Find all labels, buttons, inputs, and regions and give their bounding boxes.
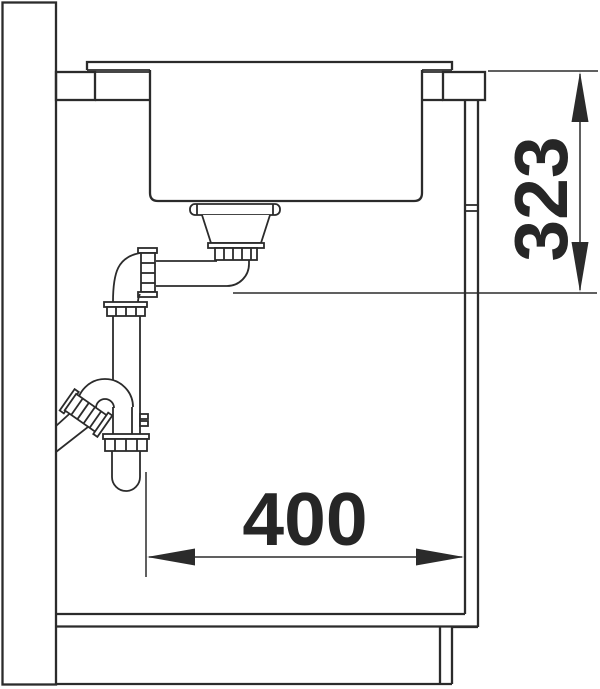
dimension-400: 400 <box>146 472 464 577</box>
countertop-left-cut <box>56 72 95 100</box>
strainer-locknut <box>215 248 257 260</box>
downpipe-union-nut <box>104 302 147 316</box>
elbow-nut <box>138 248 157 297</box>
trap-pipework <box>56 248 249 491</box>
pipe-clip <box>140 414 148 419</box>
trap-nut <box>103 434 149 451</box>
arrow-right-icon <box>416 549 464 566</box>
wall-section <box>3 3 57 685</box>
elbow-bend <box>113 253 140 302</box>
plinth <box>56 627 478 685</box>
wall-hatch <box>3 3 57 685</box>
sink <box>87 62 452 201</box>
arrow-up-icon <box>572 72 589 122</box>
drain-strainer <box>190 204 280 260</box>
countertop-right-cut <box>443 72 485 100</box>
cabinet-side-panel <box>465 100 478 627</box>
downpipe <box>113 316 148 434</box>
tailpipe <box>156 260 249 286</box>
dimension-323-label: 323 <box>499 136 583 261</box>
countertop-section <box>56 72 485 100</box>
sink-rim <box>87 62 452 70</box>
cabinet-bottom <box>56 614 478 627</box>
sink-installation-drawing: 323 400 <box>0 0 600 689</box>
dimension-323: 323 <box>233 71 598 293</box>
strainer-body <box>202 215 270 243</box>
dimension-400-label: 400 <box>242 477 367 561</box>
arrow-left-icon <box>147 549 195 566</box>
sink-bowl <box>150 70 422 201</box>
trap-cup <box>112 451 140 491</box>
strainer-flange <box>190 204 280 215</box>
installation-diagram: 323 400 <box>0 0 600 689</box>
